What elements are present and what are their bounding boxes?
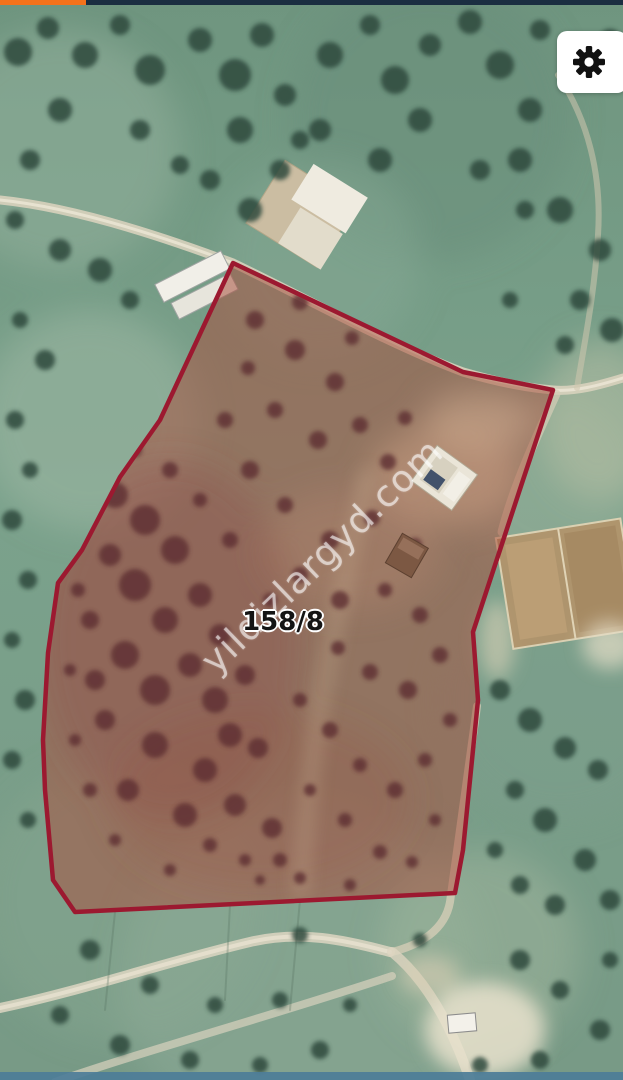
top-status-bar <box>0 0 623 5</box>
parcel-number-label: 158/8 <box>242 607 324 637</box>
progress-accent-bar <box>0 0 86 5</box>
settings-button[interactable] <box>557 31 623 93</box>
gear-icon <box>571 44 607 80</box>
building-small-house <box>447 1013 476 1033</box>
bottom-bar <box>0 1072 623 1080</box>
satellite-map[interactable] <box>0 0 623 1080</box>
map-screen: yildizlargyd.com 158/8 <box>0 0 623 1080</box>
